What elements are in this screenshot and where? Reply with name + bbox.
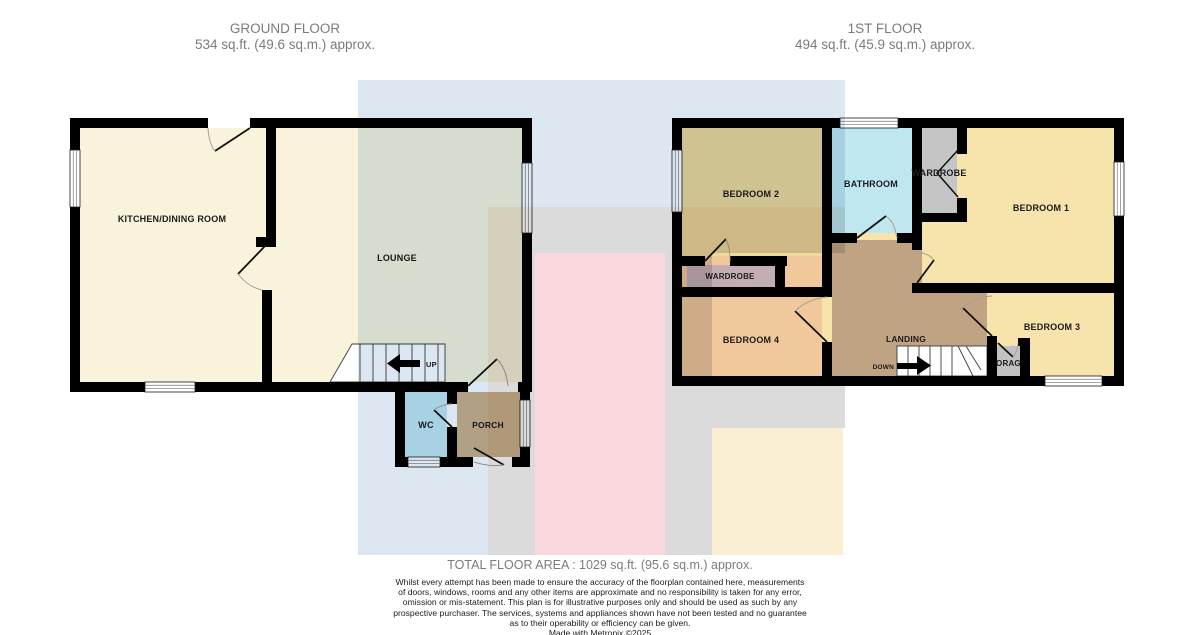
wash-cream [712, 428, 843, 555]
disclaimer-line: of doors, windows, rooms and any other i… [0, 587, 1200, 597]
floorplan-page: GROUND FLOOR 534 sq.ft. (49.6 sq.m.) app… [0, 0, 1200, 635]
landing-label: LANDING [886, 334, 926, 344]
stairs-first-floor [897, 346, 987, 376]
credit-line: Made with Metropix ©2025 [0, 628, 1200, 635]
disclaimer-line: prospective purchaser. The services, sys… [0, 608, 1200, 618]
wall [822, 342, 832, 376]
disclaimer-line: Whilst every attempt has been made to en… [0, 577, 1200, 587]
bedroom1-label: BEDROOM 1 [1013, 203, 1069, 213]
wall [1114, 216, 1124, 386]
bedroom4-label: BEDROOM 4 [723, 335, 779, 345]
bathroom-label: BATHROOM [844, 179, 898, 189]
wall [70, 118, 208, 128]
floorplan-graphic: KITCHEN/DINING ROOM LOUNGE UP WC PORCH S… [0, 0, 1200, 635]
wall [1114, 118, 1124, 162]
wall [262, 290, 272, 382]
window [145, 382, 195, 392]
kitchen-label: KITCHEN/DINING ROOM [118, 214, 226, 224]
wash-grey-strip [488, 207, 845, 253]
wall [898, 118, 1124, 128]
wall [70, 382, 145, 392]
wardrobe-left-label: WARDROBE [705, 272, 755, 281]
down-label: DOWN [873, 364, 894, 371]
window [840, 118, 898, 128]
wash-grey-left [488, 253, 535, 555]
wash-blue-top [358, 80, 845, 207]
wash-blue-left [358, 207, 488, 555]
wall [987, 338, 997, 346]
total-floor-area: TOTAL FLOOR AREA : 1029 sq.ft. (95.6 sq.… [0, 558, 1200, 572]
wall [957, 198, 967, 222]
wall [775, 257, 785, 287]
wall [897, 233, 912, 243]
window [70, 150, 80, 207]
disclaimer-line: omission or mis-statement. This plan is … [0, 597, 1200, 607]
wash-grey-right [712, 386, 845, 428]
wall [70, 207, 80, 392]
wall [1020, 338, 1030, 376]
footer: TOTAL FLOOR AREA : 1029 sq.ft. (95.6 sq.… [0, 558, 1200, 635]
window [1114, 162, 1124, 216]
wall [912, 283, 1124, 293]
wardrobe-top-label: WARDROBE [911, 168, 966, 178]
wash-pink [535, 253, 665, 555]
wall [957, 128, 967, 154]
window [1045, 376, 1102, 386]
disclaimer-line: as to their operability or efficiency ca… [0, 618, 1200, 628]
wall [1102, 376, 1124, 386]
bedroom3-label: BEDROOM 3 [1024, 322, 1080, 332]
wall [672, 376, 1045, 386]
wall [266, 128, 276, 237]
wall [912, 128, 922, 250]
wash-grey-mid [665, 253, 712, 555]
wall [70, 118, 80, 150]
